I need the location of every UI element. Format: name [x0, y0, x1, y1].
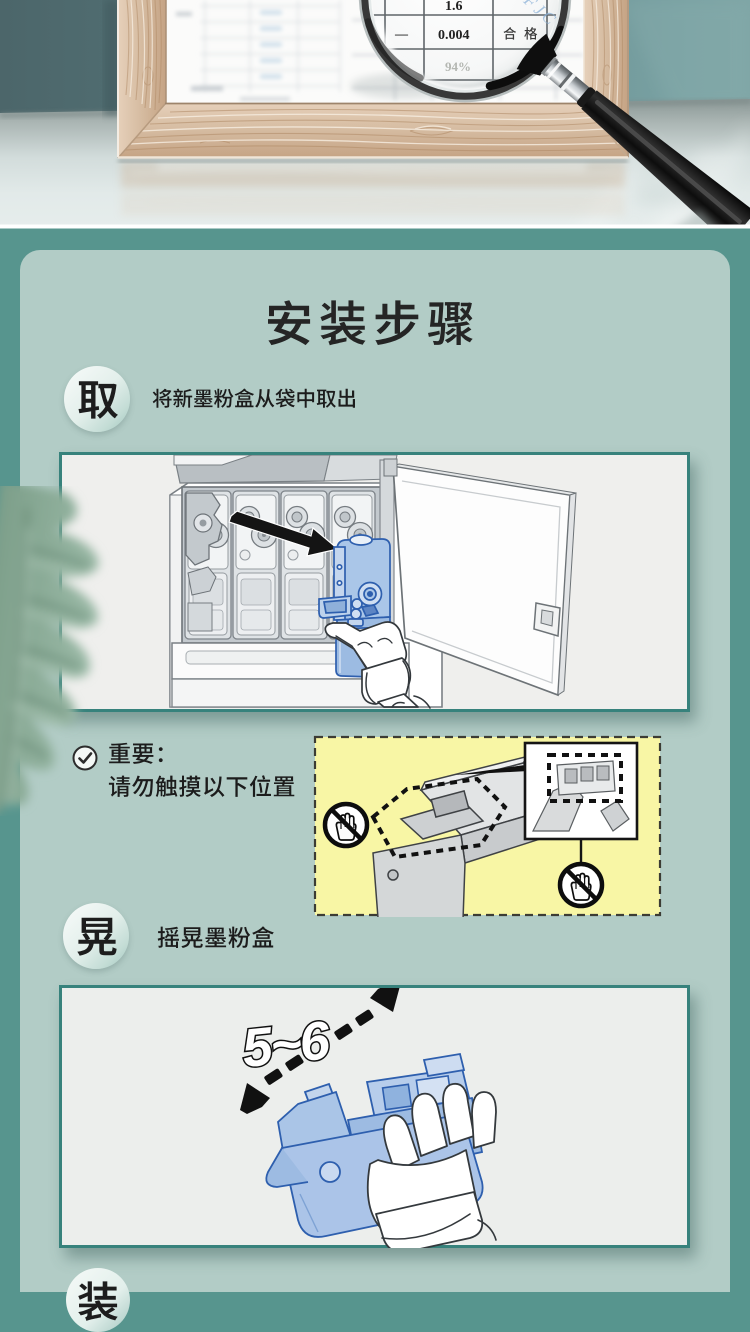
svg-text:5~6: 5~6 [239, 1010, 333, 1079]
svg-text:94%: 94% [445, 59, 471, 74]
svg-text:1.6: 1.6 [445, 0, 463, 14]
svg-text:0.004: 0.004 [438, 28, 470, 43]
svg-text:—: — [394, 26, 409, 41]
